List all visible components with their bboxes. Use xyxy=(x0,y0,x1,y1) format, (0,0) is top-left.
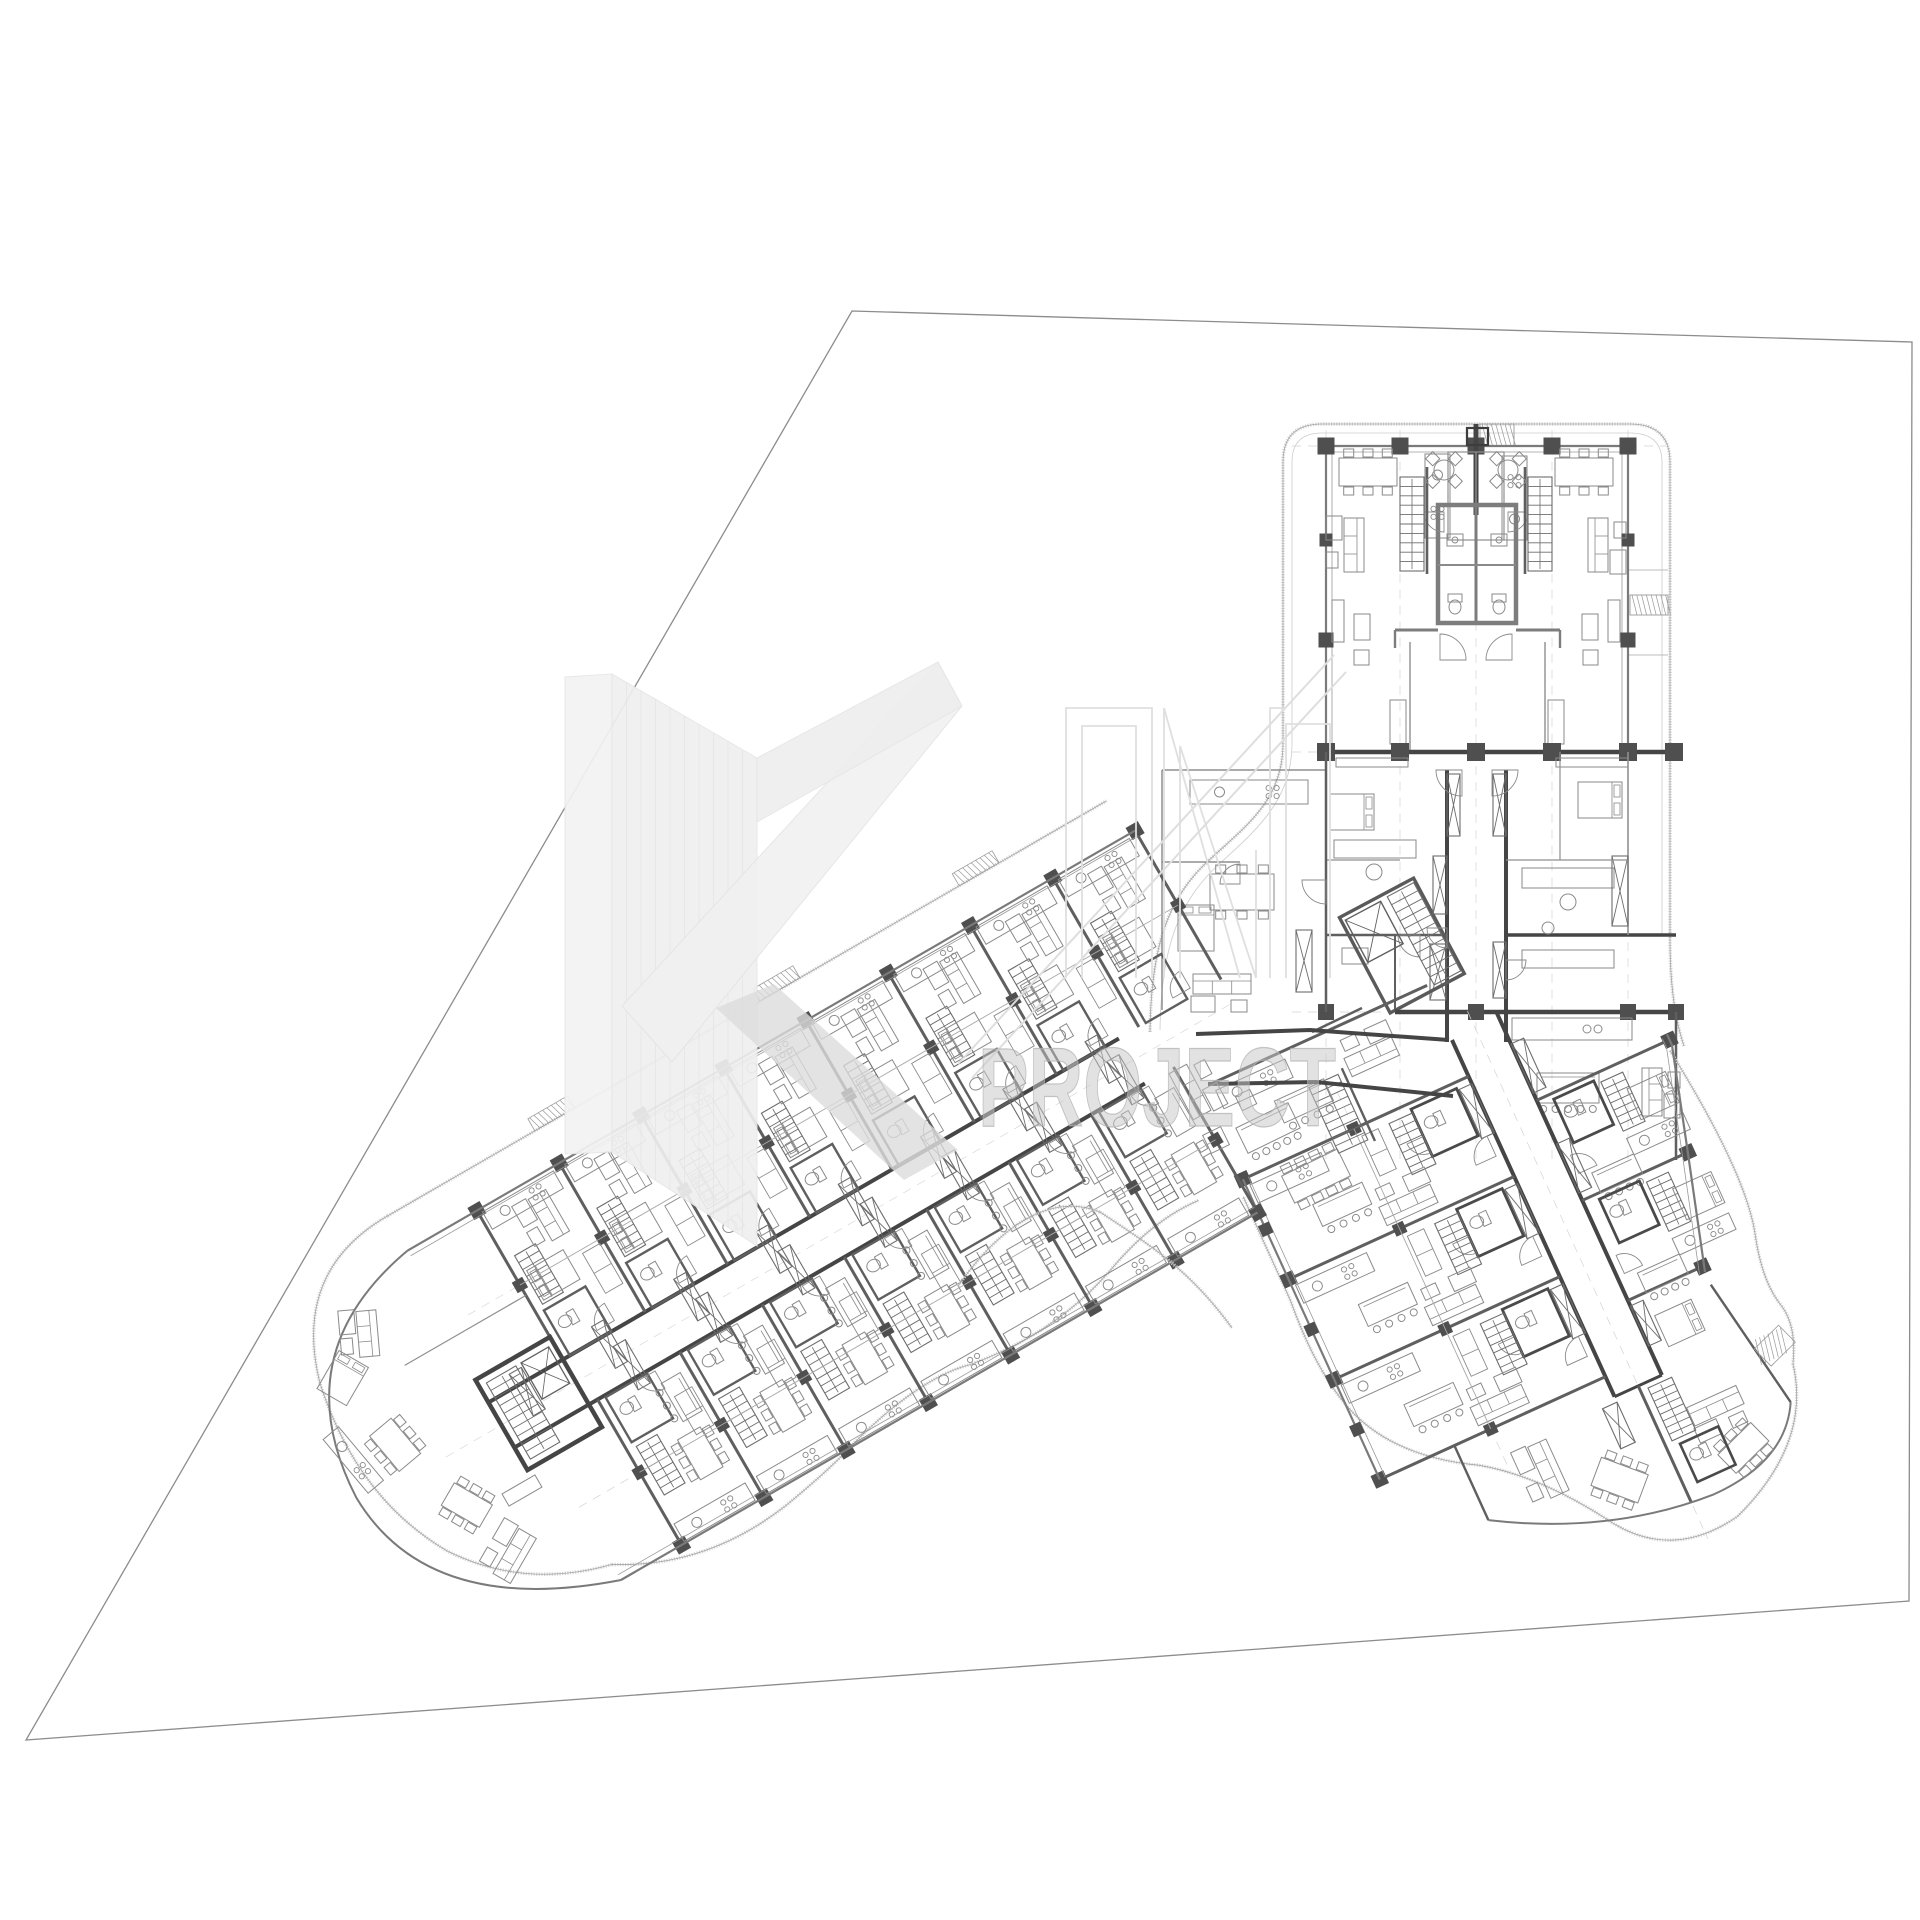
svg-text:PROJECT: PROJECT xyxy=(978,1025,1336,1150)
